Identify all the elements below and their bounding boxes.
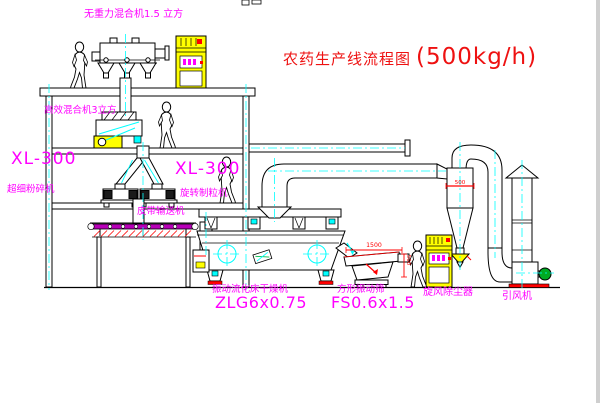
label-belt-conveyor: 皮带输送机	[137, 207, 185, 217]
worker-floor2	[159, 102, 176, 148]
control-cabinet-lower	[426, 235, 452, 287]
worker-roof	[71, 42, 88, 88]
label-screen-model: FS0.6x1.5	[331, 295, 415, 311]
label-mill-model: XL-300	[11, 151, 76, 168]
screen-side-dim: 500	[405, 255, 411, 266]
dryer-inlet-box	[193, 250, 209, 272]
fan-inlet-elbow	[488, 248, 512, 282]
gravity-free-mixer	[92, 38, 169, 113]
title-capacity: (500kg/h)	[416, 44, 537, 70]
diagram-title: 农药生产线流程图 (500kg/h)	[283, 44, 537, 70]
cyclone-dust-collector	[446, 145, 512, 282]
label-gravity-mixer: 无重力混合机1.5 立方	[84, 10, 183, 20]
screen-length-dim: 1500	[366, 242, 382, 249]
title-text: 农药生产线流程图	[283, 48, 411, 69]
fan-motor	[539, 268, 551, 280]
label-mill-name: 超细粉碎机	[7, 185, 55, 195]
label-granulator-model: XL-300	[175, 161, 240, 178]
y-pipe-left	[116, 158, 146, 184]
label-fan: 引风机	[502, 292, 532, 302]
window-edge-strip	[596, 0, 600, 403]
worker-ground	[410, 241, 427, 287]
label-granulator-name: 旋转制粒机	[180, 189, 228, 199]
control-cabinet-upper	[176, 36, 206, 88]
flow-diagram-canvas: 1500 500 500 农药生产线流程图 (500kg/h) 无重力混合机1.…	[0, 0, 600, 403]
cyclone-width-dim: 500	[455, 180, 466, 186]
label-cyclone: 旋风除尘器	[423, 288, 473, 298]
induced-draft-fan	[509, 262, 551, 288]
label-dryer-model: ZLG6x0.75	[215, 295, 307, 311]
exhaust-duct	[258, 164, 447, 218]
label-high-mixer: 高效混合机3立方	[44, 106, 117, 116]
fluid-bed-dryer	[193, 209, 357, 285]
